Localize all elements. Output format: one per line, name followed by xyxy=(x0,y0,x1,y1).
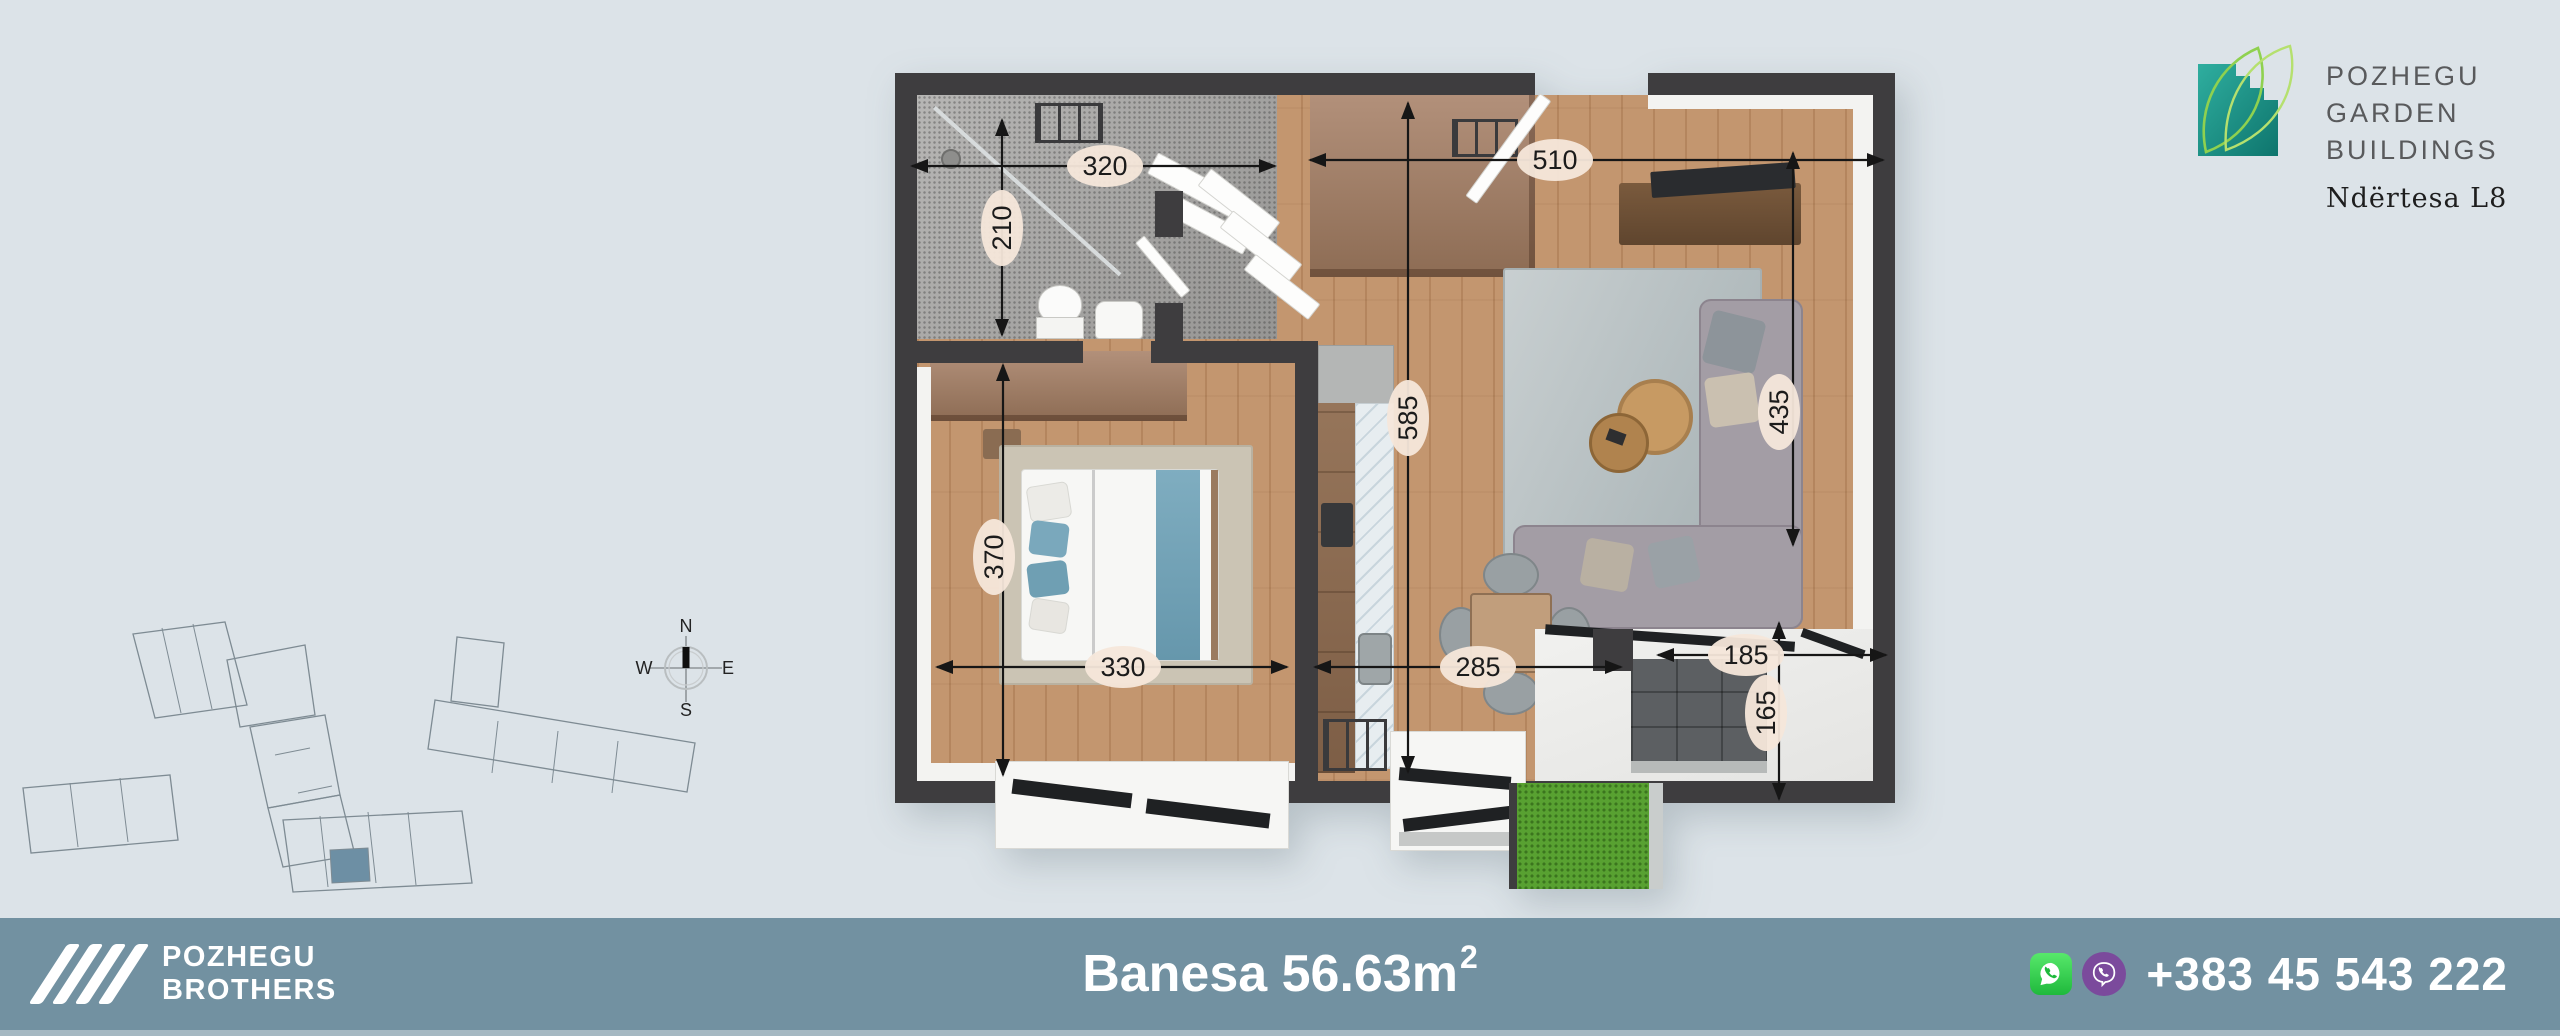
pozhegu-brothers-logo: POZHEGU BROTHERS xyxy=(48,918,337,1030)
planter-edge xyxy=(1649,783,1663,889)
phone-number: +383 45 543 222 xyxy=(2146,947,2508,1001)
page: POZHEGU GARDEN BUILDINGS Ndërtesa L8 xyxy=(0,0,2560,1036)
window-frame xyxy=(1403,805,1518,832)
building-outline xyxy=(428,700,695,792)
stove xyxy=(1321,503,1353,547)
balcony-ledge xyxy=(1631,761,1767,773)
shelf-icon xyxy=(1035,103,1103,143)
wall xyxy=(1295,341,1318,781)
sofa-pillow xyxy=(1579,537,1635,593)
inner-wall-face xyxy=(1648,95,1873,109)
washer-icon xyxy=(1323,719,1387,771)
wall xyxy=(1155,191,1183,237)
building-label: Ndërtesa L8 xyxy=(2326,183,2507,214)
bed-pillow-blue xyxy=(1028,520,1070,558)
building-divider xyxy=(162,628,181,713)
sofa-pillow xyxy=(1704,372,1760,428)
brothers-line2: BROTHERS xyxy=(162,974,337,1007)
inner-wall-face xyxy=(1853,95,1873,629)
bed-runner xyxy=(1156,470,1200,660)
window-frame xyxy=(1399,767,1512,790)
balcony-tiles xyxy=(1631,659,1767,763)
sofa-pillow xyxy=(1647,535,1702,590)
contact-block: +383 45 543 222 xyxy=(2030,918,2508,1030)
dining-chair xyxy=(1483,553,1539,597)
whatsapp-icon[interactable] xyxy=(2030,953,2072,995)
toilet-tank xyxy=(1036,317,1084,339)
inner-wall-face xyxy=(917,367,931,763)
area-title: Banesa 56.63m2 xyxy=(1082,918,1478,1030)
area-superscript: 2 xyxy=(1460,939,1478,976)
building-divider xyxy=(70,783,78,847)
highlighted-unit[interactable] xyxy=(330,848,370,883)
area-label: Banesa 56.63m xyxy=(1082,944,1458,1004)
bed-pillow xyxy=(1028,597,1071,635)
footer-bar: POZHEGU BROTHERS Banesa 56.63m2 +383 45 … xyxy=(0,918,2560,1030)
viber-icon[interactable] xyxy=(2082,952,2126,996)
kitchen-sink xyxy=(1358,633,1392,685)
bed xyxy=(1021,469,1219,661)
building-outline xyxy=(250,715,340,808)
grass-patch xyxy=(1509,783,1517,889)
shower-head-icon xyxy=(941,149,961,169)
wall xyxy=(895,73,917,803)
garden-leaf-logo-icon xyxy=(2196,40,2300,158)
site-plan-map xyxy=(10,615,790,915)
building-outline xyxy=(283,811,472,892)
building-divider xyxy=(492,721,498,773)
wall xyxy=(1873,73,1895,803)
brothers-line1: POZHEGU xyxy=(162,941,337,974)
grass-patch xyxy=(1517,783,1649,889)
building-outline xyxy=(23,775,178,853)
window-frame xyxy=(1012,779,1133,809)
door-step xyxy=(1399,832,1517,846)
wall xyxy=(917,341,1083,363)
floor-plan: 320210510585435370330285185165 xyxy=(895,73,1895,893)
wall xyxy=(895,73,1535,95)
brand-logo: POZHEGU GARDEN BUILDINGS Ndërtesa L8 xyxy=(2196,40,2507,214)
bed-pillow xyxy=(1025,481,1072,523)
brand-name-line1: POZHEGU xyxy=(2326,58,2507,95)
window-frame xyxy=(1146,799,1271,829)
wall xyxy=(1593,629,1633,671)
wall xyxy=(1648,73,1895,95)
building-divider xyxy=(552,731,558,783)
building-divider xyxy=(275,748,310,755)
kitchen-cabinets xyxy=(1318,403,1355,773)
building-divider xyxy=(612,741,618,793)
brand-name-line3: BUILDINGS xyxy=(2326,132,2507,169)
building-divider xyxy=(408,812,416,885)
building-outline xyxy=(133,622,247,718)
dining-chair xyxy=(1483,671,1539,715)
kitchen-counter xyxy=(1355,403,1394,769)
building-divider xyxy=(193,624,212,709)
kitchen-appliance xyxy=(1318,345,1394,405)
brand-name-line2: GARDEN xyxy=(2326,95,2507,132)
bedroom-window xyxy=(995,761,1289,849)
building-outline xyxy=(451,637,504,707)
duvet-fold xyxy=(1092,470,1095,660)
bidet xyxy=(1095,301,1143,339)
building-divider xyxy=(320,816,328,887)
bed-pillow-blue xyxy=(1026,560,1070,599)
wall xyxy=(1155,303,1183,345)
balcony-door xyxy=(1390,731,1526,851)
brand-slashes-icon xyxy=(48,944,140,1004)
footer-strip xyxy=(0,1030,2560,1036)
building-divider xyxy=(120,778,128,842)
bed-footboard xyxy=(1211,470,1218,660)
building-outline xyxy=(227,645,315,727)
building-divider xyxy=(298,786,332,793)
